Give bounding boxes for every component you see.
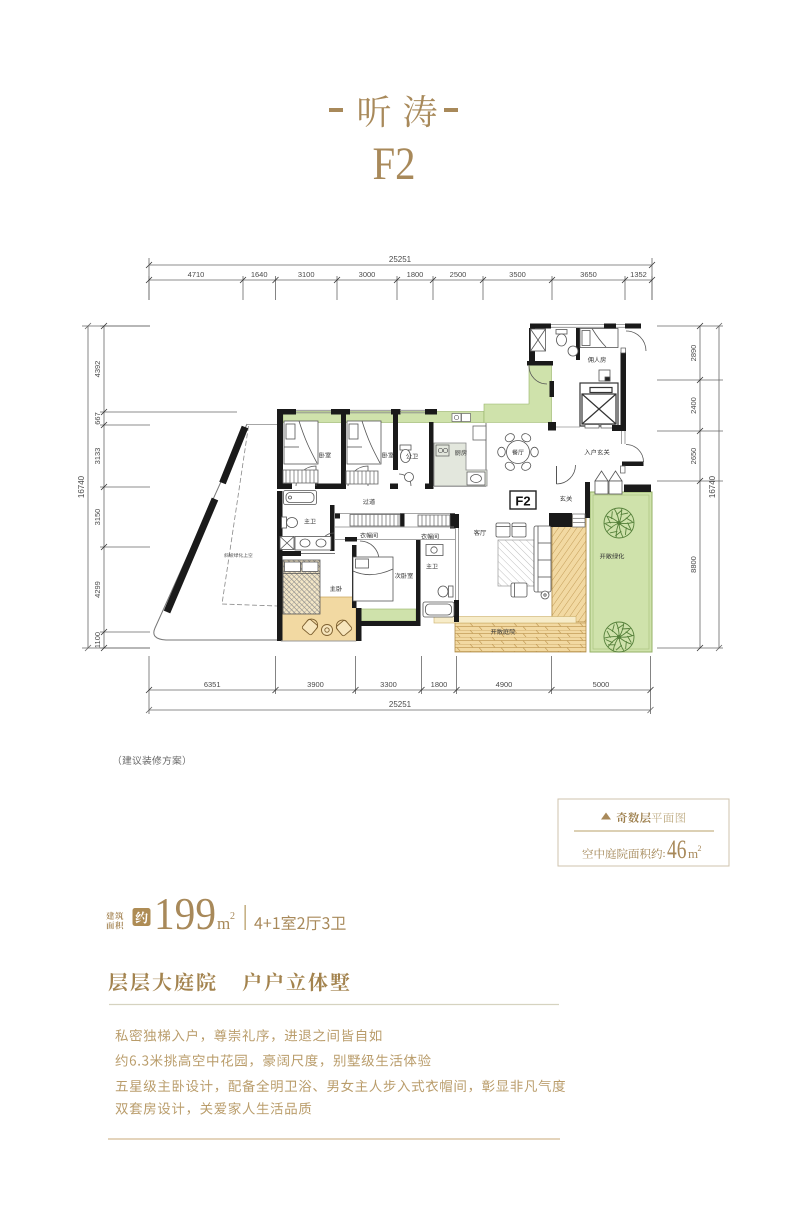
svg-text:F2: F2 — [515, 494, 530, 509]
svg-text:3500: 3500 — [509, 270, 526, 279]
svg-text:6351: 6351 — [204, 680, 221, 689]
svg-text:2400: 2400 — [689, 397, 698, 414]
svg-text:2650: 2650 — [689, 448, 698, 465]
svg-text:F2: F2 — [373, 138, 416, 190]
svg-text:3133: 3133 — [93, 448, 102, 465]
svg-text:16740: 16740 — [708, 475, 717, 498]
svg-text:4392: 4392 — [93, 361, 102, 378]
svg-text:3650: 3650 — [580, 270, 597, 279]
svg-text:46: 46 — [667, 835, 687, 864]
svg-text:4299: 4299 — [93, 581, 102, 598]
svg-text:4710: 4710 — [188, 270, 205, 279]
svg-text:25251: 25251 — [389, 700, 412, 709]
svg-text:3000: 3000 — [359, 270, 376, 279]
svg-text:1352: 1352 — [630, 270, 647, 279]
svg-text:3100: 3100 — [298, 270, 315, 279]
svg-text:1100: 1100 — [93, 632, 102, 648]
svg-text::: : — [663, 848, 666, 860]
svg-text:4900: 4900 — [496, 680, 513, 689]
svg-text:m: m — [217, 914, 230, 933]
svg-text:1640: 1640 — [251, 270, 268, 279]
svg-text:1800: 1800 — [407, 270, 424, 279]
svg-text:2: 2 — [698, 844, 702, 853]
svg-text:16740: 16740 — [77, 475, 86, 498]
svg-text:8800: 8800 — [689, 556, 698, 573]
svg-text:2: 2 — [230, 911, 235, 922]
svg-text:3300: 3300 — [380, 680, 397, 689]
svg-text:667: 667 — [93, 412, 102, 425]
svg-text:2500: 2500 — [450, 270, 467, 279]
svg-text:25251: 25251 — [389, 255, 412, 264]
svg-text:3150: 3150 — [93, 509, 102, 526]
svg-text:5000: 5000 — [593, 680, 610, 689]
svg-text:2890: 2890 — [689, 345, 698, 362]
svg-text:3900: 3900 — [307, 680, 324, 689]
svg-text:1800: 1800 — [431, 680, 448, 689]
svg-text:199: 199 — [154, 889, 216, 939]
